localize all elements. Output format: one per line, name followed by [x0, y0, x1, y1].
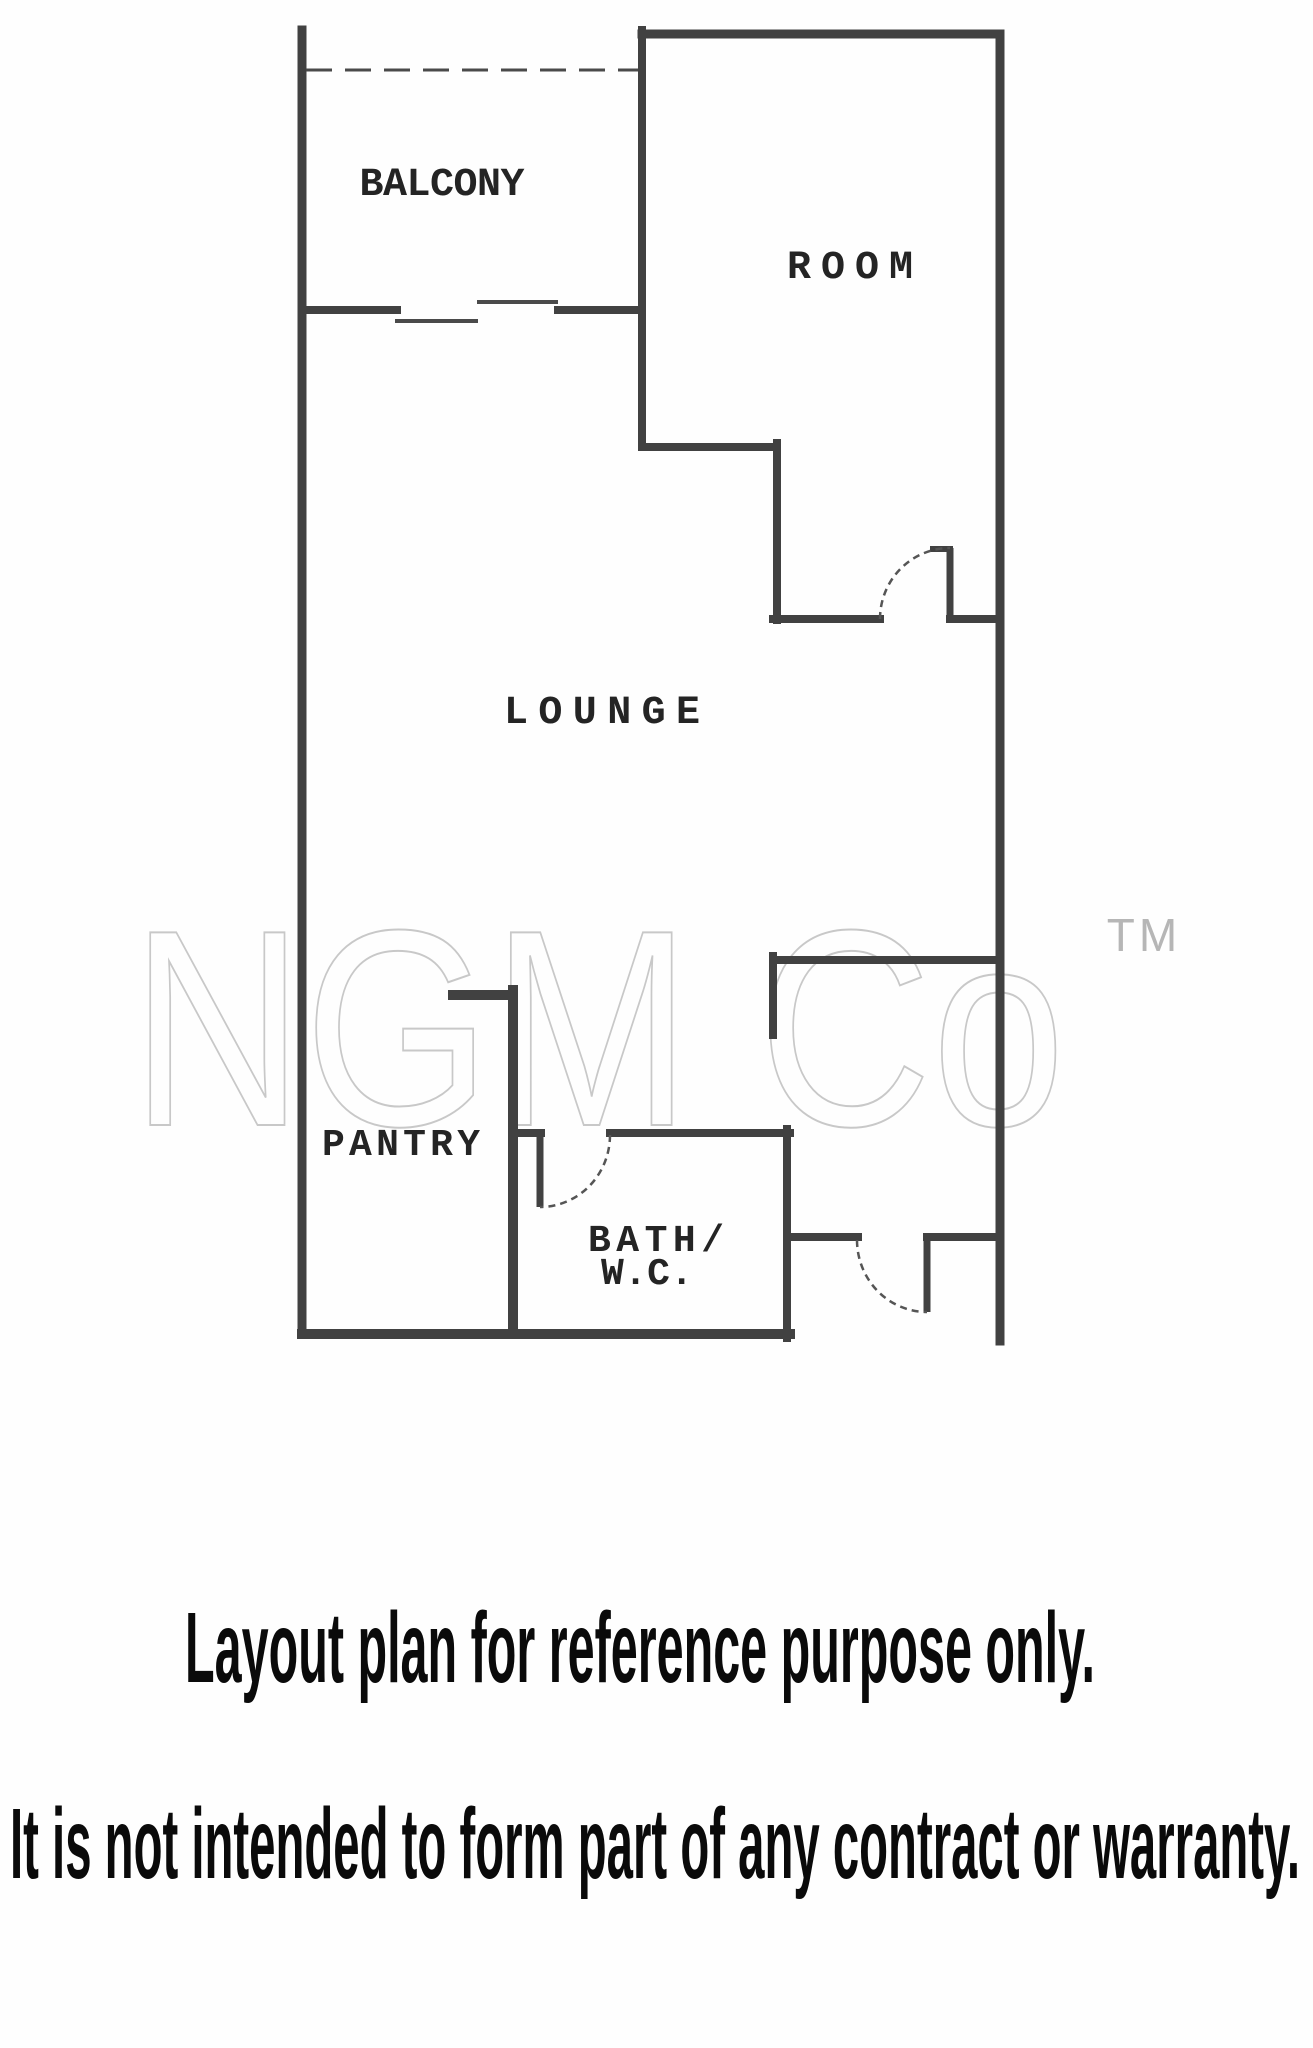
entry-door-swing-arc [857, 1240, 927, 1312]
floor-plan-page: NGM Co TM [0, 0, 1313, 2048]
label-balcony: BALCONY [360, 163, 525, 208]
floor-plan-drawing: NGM Co TM [0, 0, 1313, 2048]
watermark-trademark-symbol: TM [1107, 909, 1181, 961]
disclaimer-line-2: It is not intended to form part of any c… [10, 1788, 1300, 1900]
label-bath-line2: W.C. [601, 1253, 693, 1296]
label-room: ROOM [787, 246, 913, 291]
disclaimer-line-1: Layout plan for reference purpose only. [185, 1592, 1095, 1704]
label-lounge: LOUNGE [504, 691, 700, 736]
room-door-swing-arc [880, 548, 950, 619]
watermark-logo-text: NGM Co [131, 873, 1066, 1185]
